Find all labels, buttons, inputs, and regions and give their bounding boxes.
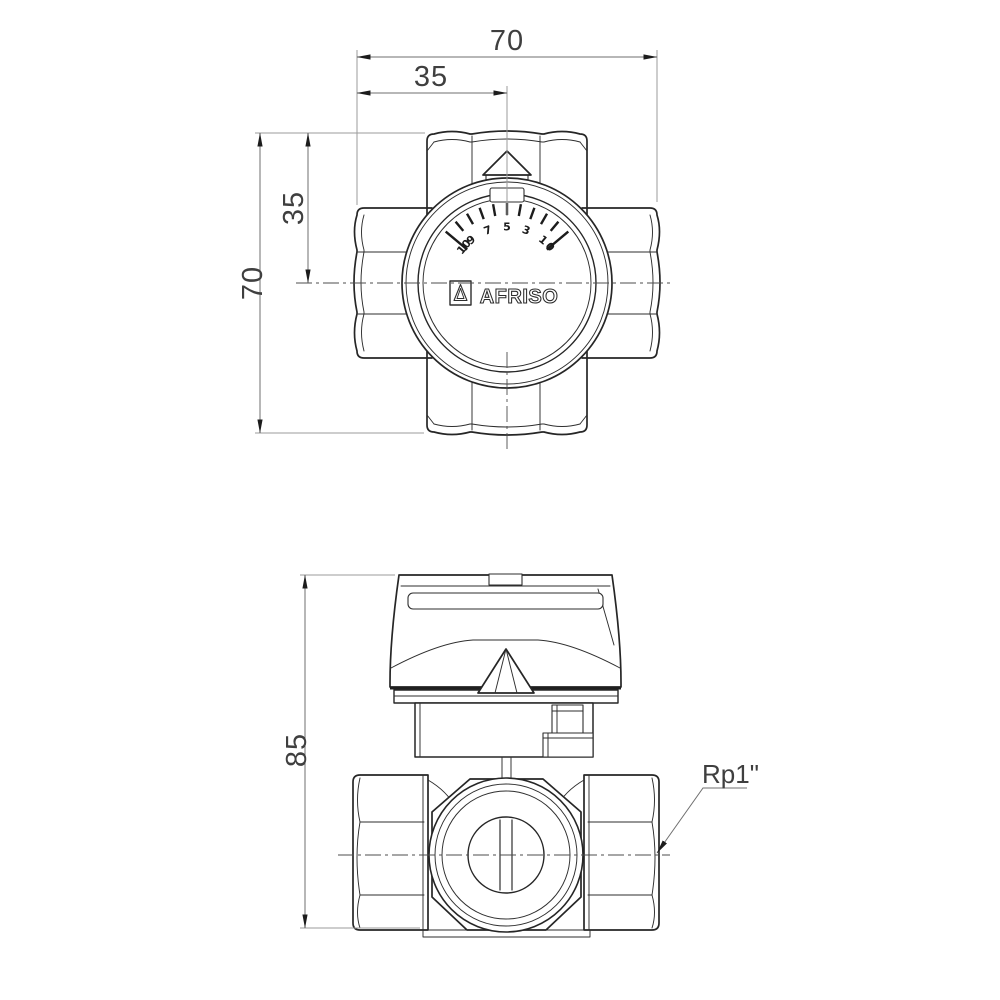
dim-width-center: 35 [414,61,448,93]
knob-top-notch [489,574,522,585]
dim-height-center: 35 [278,191,310,225]
knob-window [408,593,603,609]
valve-neck [415,703,593,778]
stem-lines [502,757,511,778]
dim-height-total: 70 [237,266,269,300]
top-view: 10975310 AFRISO 70 35 70 35 [237,25,672,453]
port-thread-label: Rp1" [702,759,759,789]
front-view: 85 Rp1" [281,574,759,937]
dim-height-front: 85 [281,733,313,767]
port-thread-leader [657,788,747,853]
dial-label: 5 [503,221,511,234]
brand-text: AFRISO [480,286,559,308]
drawing-canvas: 10975310 AFRISO 70 35 70 35 [0,0,1000,1000]
dim-width-total: 70 [490,25,524,57]
valve-technical-drawing: 10975310 AFRISO 70 35 70 35 [0,0,1000,1000]
